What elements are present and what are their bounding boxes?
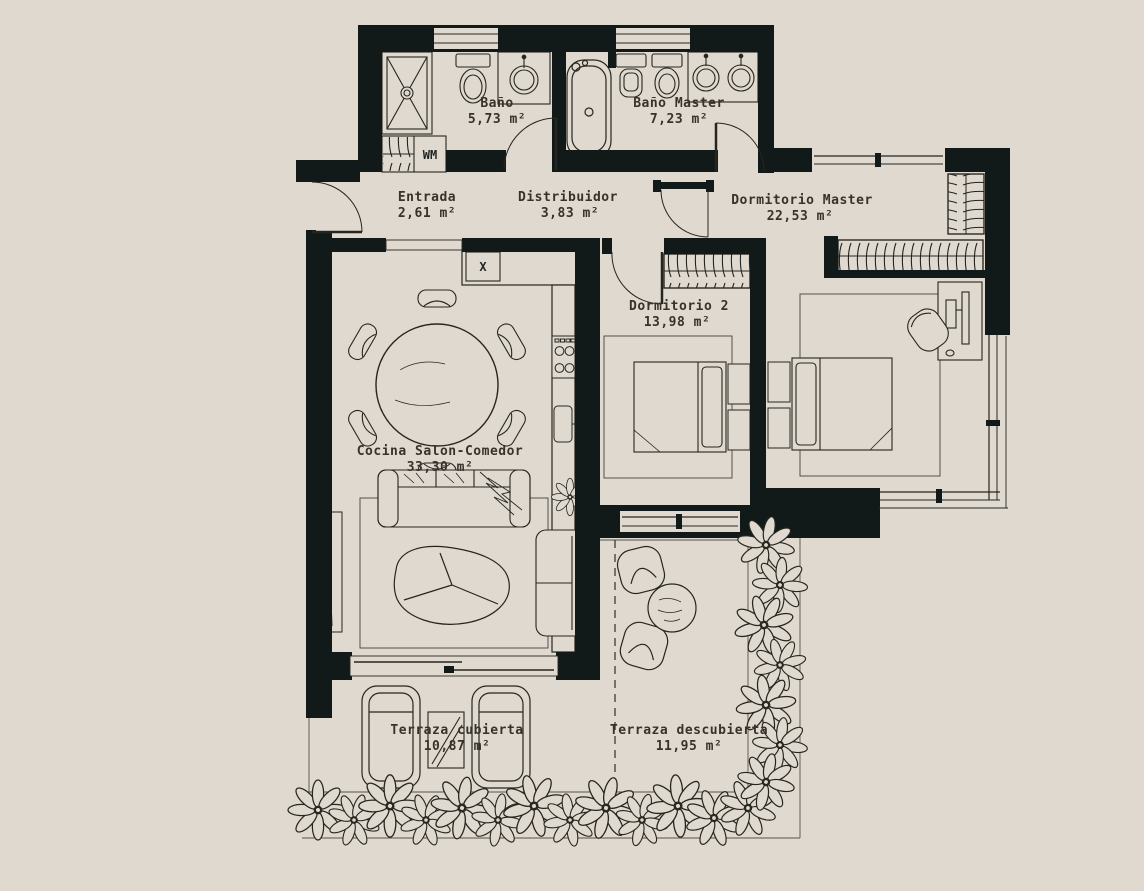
kitchen-opening [386, 240, 462, 250]
washing-machine-label: WM [423, 148, 437, 162]
floorplan-drawing: Baño 5,73 m² Baño Master 7,23 m² Entrada… [0, 0, 1144, 891]
bathtub [567, 60, 611, 158]
room-area-bathroom: 5,73 m² [468, 112, 526, 127]
nightstand [728, 410, 750, 450]
shower [382, 52, 432, 134]
bathroom-window [434, 28, 498, 49]
room-area-hall: 3,83 m² [541, 206, 599, 221]
bidet [616, 54, 646, 97]
master-bedroom-top-window [812, 150, 945, 170]
bedroom2-bed [634, 362, 726, 452]
room-area-kitchen-living: 33,30 m² [407, 460, 474, 475]
double-sink [688, 52, 758, 102]
room-label-master-bedroom: Dormitorio Master [731, 193, 873, 208]
toilet [652, 54, 682, 98]
room-area-entrance: 2,61 m² [398, 206, 456, 221]
living-room-sliding-door [350, 656, 558, 676]
stove [552, 336, 575, 378]
room-area-master-bedroom: 22,53 m² [767, 209, 834, 224]
nightstand [768, 408, 790, 448]
floorplan: Baño 5,73 m² Baño Master 7,23 m² Entrada… [0, 0, 1144, 891]
desk [938, 282, 982, 360]
master-bathroom-window [616, 28, 690, 49]
room-area-open-terrace: 11,95 m² [656, 739, 723, 754]
room-area-master-bathroom: 7,23 m² [650, 112, 708, 127]
nightstand [728, 364, 750, 404]
room-label-covered-terrace: Terraza cubierta [390, 723, 523, 738]
nightstand [768, 362, 790, 402]
room-label-bedroom2: Dormitorio 2 [629, 299, 729, 314]
outdoor-table [648, 584, 696, 632]
master-bed [792, 358, 892, 450]
kitchen-unit-label: X [479, 260, 487, 274]
sofa [378, 470, 530, 527]
room-label-master-bathroom: Baño Master [633, 96, 725, 111]
room-label-hall: Distribuidor [518, 190, 618, 205]
bedroom2-window [620, 511, 740, 532]
room-area-covered-terrace: 10,87 m² [424, 739, 491, 754]
room-area-bedroom2: 13,98 m² [644, 315, 711, 330]
room-label-bathroom: Baño [480, 96, 513, 111]
room-label-kitchen-living: Cocina Salon-Comedor [357, 444, 524, 459]
room-label-entrance: Entrada [398, 190, 456, 205]
room-label-open-terrace: Terraza descubierta [610, 723, 768, 738]
